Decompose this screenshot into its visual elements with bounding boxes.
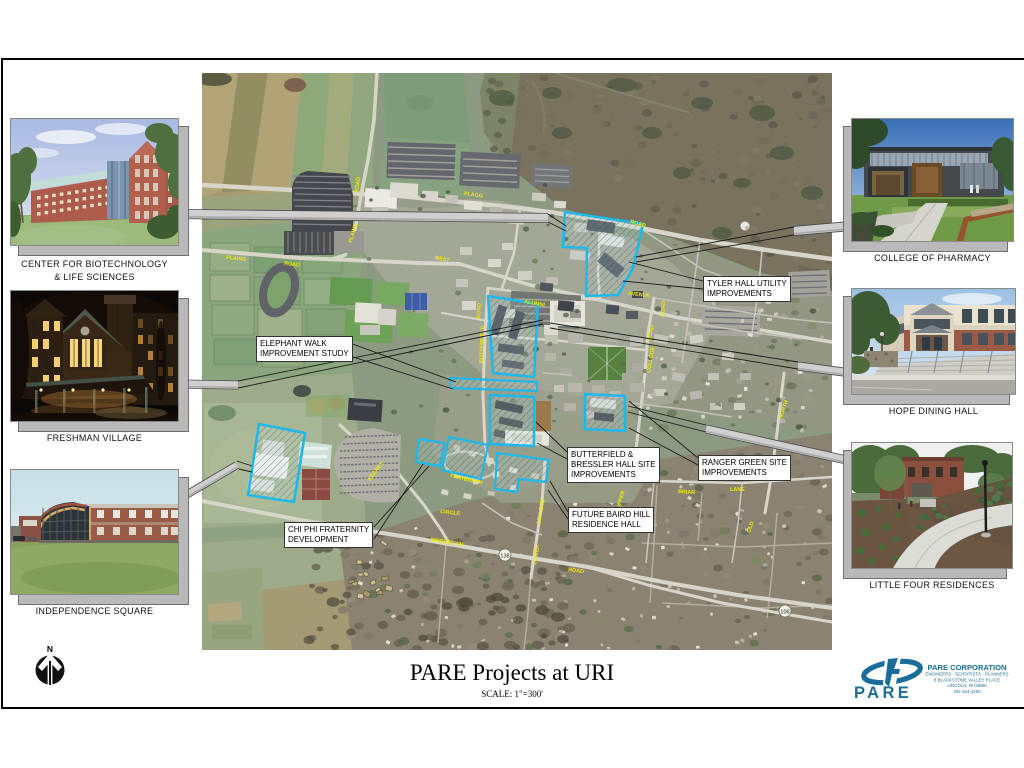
svg-text:N: N — [47, 644, 53, 654]
svg-text:LANE: LANE — [730, 487, 745, 493]
svg-text:ENGINEERS · SCIENTISTS · PLANN: ENGINEERS · SCIENTISTS · PLANNERS — [925, 672, 1008, 677]
svg-text:401-334-4100: 401-334-4100 — [953, 689, 981, 694]
svg-text:106: 106 — [780, 610, 789, 616]
svg-text:138: 138 — [500, 554, 509, 560]
svg-text:8 BLACKSTONE VALLEY PLACE: 8 BLACKSTONE VALLEY PLACE — [934, 677, 1000, 682]
svg-text:BRIAR: BRIAR — [678, 489, 696, 496]
svg-text:ROAD: ROAD — [476, 303, 483, 319]
svg-text:LINCOLN, RI 02865: LINCOLN, RI 02865 — [947, 683, 987, 688]
svg-text:PARE: PARE — [854, 684, 912, 702]
